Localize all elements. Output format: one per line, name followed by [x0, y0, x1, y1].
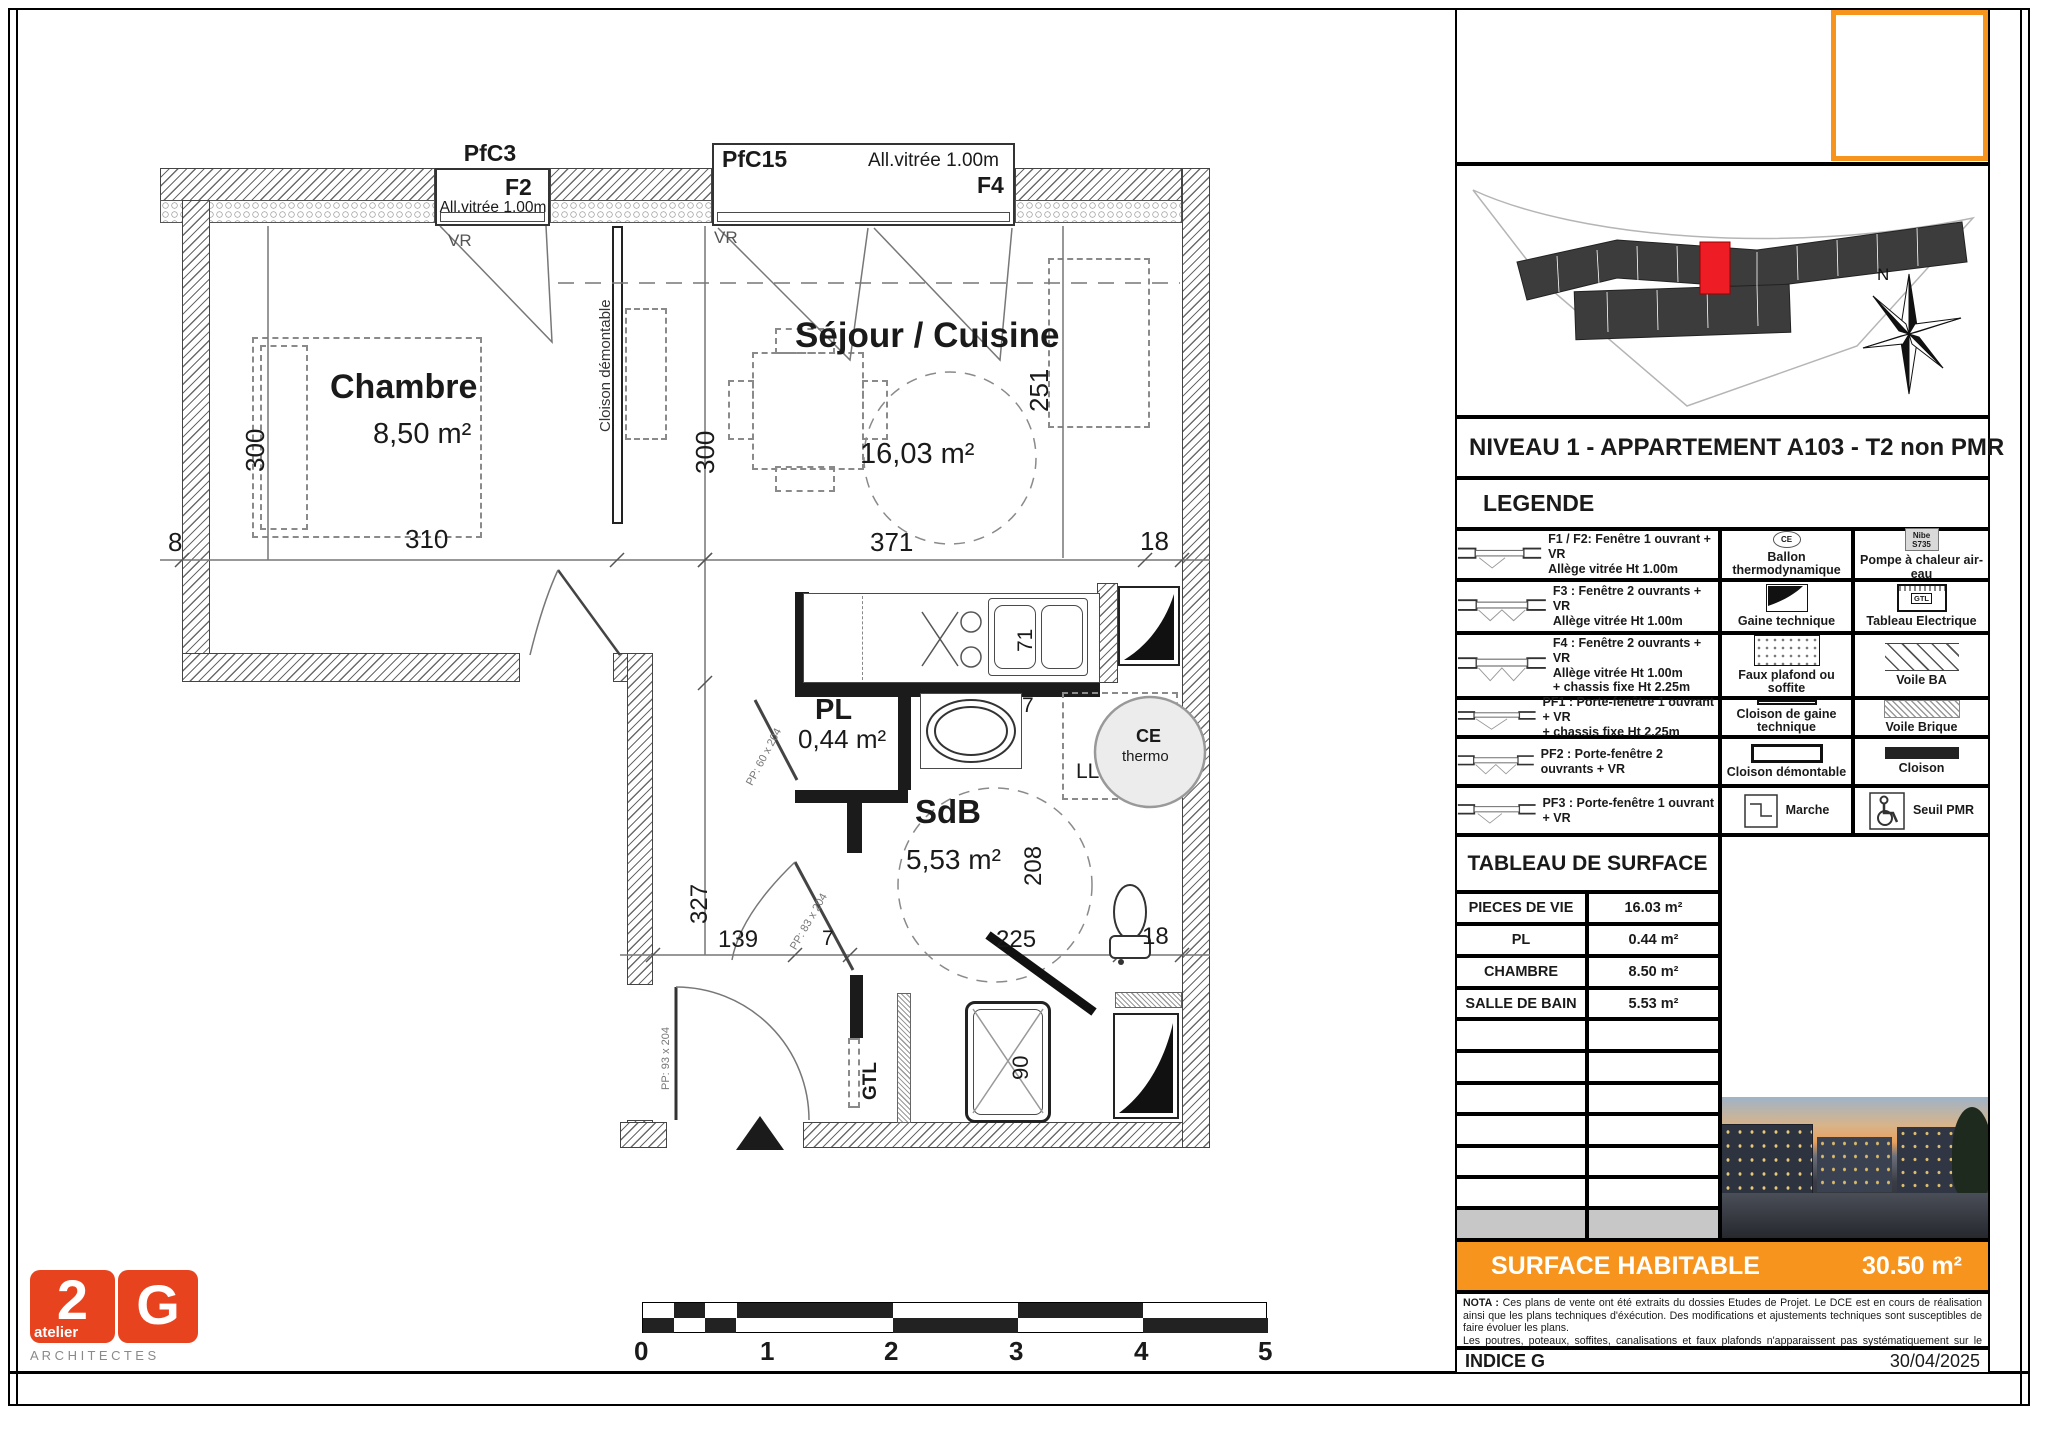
room-pl-area: 0,44 m² — [798, 724, 886, 755]
dim-310: 310 — [405, 524, 448, 555]
dim-7-kitchen: 7 — [1022, 694, 1034, 718]
washbasin — [927, 700, 1015, 762]
dim-139: 139 — [718, 926, 758, 954]
room-sejour-area: 16,03 m² — [860, 438, 974, 471]
door-entree-label: PP: 93 x 204 — [660, 1027, 672, 1090]
scale-4: 4 — [1134, 1336, 1148, 1367]
window-f2-tag: PfC3 — [430, 140, 550, 167]
room-sdb-area: 5,53 m² — [906, 844, 1001, 876]
window-f4-code: F4 — [977, 172, 1004, 199]
building-photo — [1722, 1097, 1988, 1238]
ballon-thermo: thermo — [1122, 748, 1169, 765]
ballon-ce: CE — [1136, 726, 1161, 747]
scale-3: 3 — [1009, 1336, 1023, 1367]
scale-2: 2 — [884, 1336, 898, 1367]
room-chambre: Chambre — [330, 368, 477, 407]
room-sejour: Séjour / Cuisine — [795, 316, 1060, 356]
scale-5: 5 — [1258, 1336, 1272, 1367]
dim-90: 90 — [1008, 1056, 1034, 1080]
dim-7-sdb: 7 — [822, 927, 834, 951]
room-pl: PL — [815, 694, 852, 727]
dim-327: 327 — [686, 884, 714, 924]
dim-300-chambre: 300 — [240, 429, 271, 472]
dim-225: 225 — [996, 926, 1036, 954]
window-f4-vr: VR — [714, 228, 738, 248]
window-f2-allege: All.vitrée 1.00m — [437, 199, 549, 217]
entrance-arrow — [736, 1116, 784, 1150]
dim-18-sejour: 18 — [1140, 526, 1169, 557]
gtl-label: GTL — [860, 1062, 882, 1100]
scale-0: 0 — [634, 1336, 648, 1367]
plan-sheet: PfC3 F2 All.vitrée 1.00m VR PfC15 All.vi… — [0, 0, 2048, 1437]
room-sdb: SdB — [915, 793, 981, 831]
cloison-demontable-label: Cloison démontable — [597, 299, 614, 432]
dim-371: 371 — [870, 527, 913, 558]
room-chambre-area: 8,50 m² — [373, 418, 471, 451]
window-f4-allege: All.vitrée 1.00m — [868, 150, 999, 172]
dim-8: 8 — [168, 527, 182, 558]
window-f2-code: F2 — [505, 174, 532, 201]
window-f2-vr: VR — [448, 231, 472, 251]
dim-71: 71 — [1014, 629, 1038, 652]
dim-18-sdb: 18 — [1142, 923, 1169, 951]
dim-208: 208 — [1020, 846, 1048, 886]
lave-linge: LL — [1076, 760, 1099, 784]
scale-1: 1 — [760, 1336, 774, 1367]
window-f4-tag: PfC15 — [722, 146, 787, 173]
dim-251: 251 — [1024, 369, 1055, 412]
dim-300-sejour: 300 — [690, 431, 721, 474]
